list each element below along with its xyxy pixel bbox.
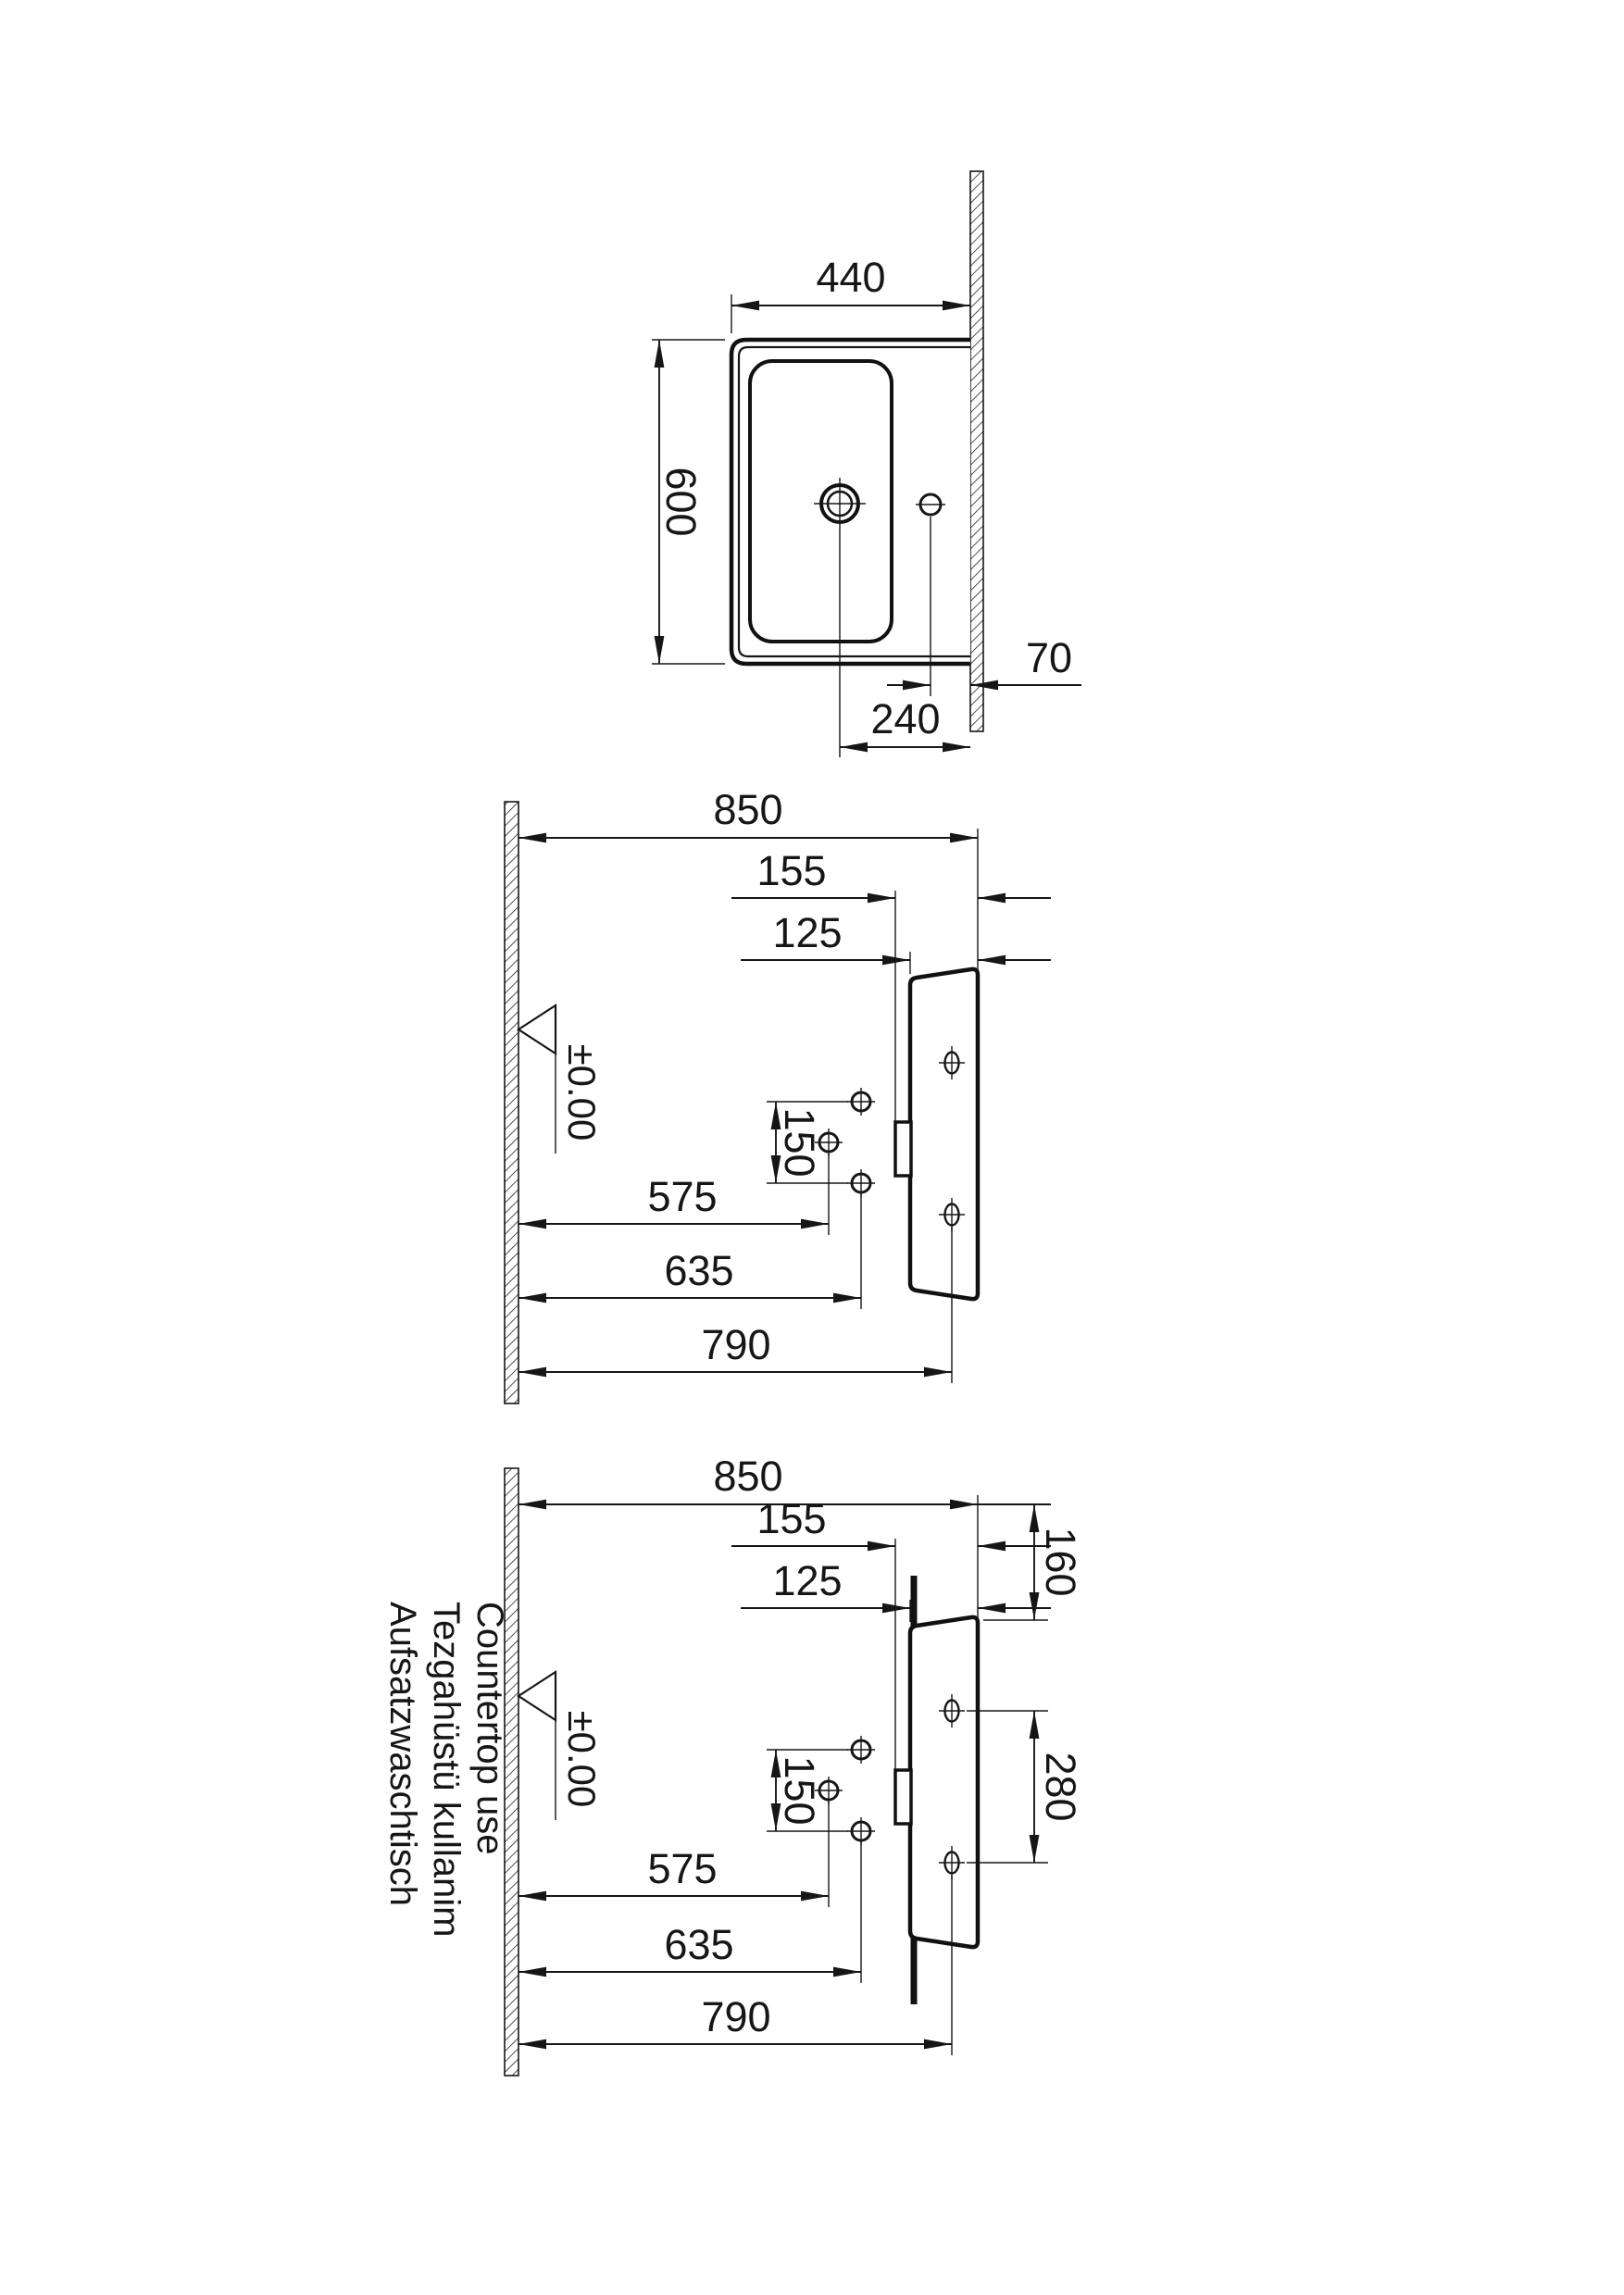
- dim-label-790: 790: [701, 1993, 770, 2040]
- dim-label-150: 150: [776, 1107, 823, 1177]
- wall-hatch: [970, 171, 983, 731]
- dim-label-635: 635: [664, 1247, 733, 1294]
- dim-label-70: 70: [1026, 634, 1072, 681]
- dim-label-575: 575: [647, 1845, 717, 1892]
- dim-label-575: 575: [647, 1173, 717, 1220]
- caption-tr: Tezgahüstü kullanim: [426, 1602, 467, 1937]
- dim-label-280: 280: [1037, 1752, 1084, 1821]
- dimension-height-850: 850: [518, 786, 978, 970]
- caption-en: Countertop use: [469, 1602, 510, 1855]
- floor-hatch: [505, 802, 518, 1403]
- level-mark: ±0.00: [518, 1005, 604, 1154]
- technical-drawing-page: 440 600 70 240: [0, 0, 1624, 2295]
- dim-label-155: 155: [756, 1495, 826, 1542]
- dim-label-790: 790: [701, 1321, 770, 1368]
- dimension-waste-240: 240: [840, 695, 970, 752]
- dimension-fixing-790: 790: [518, 1876, 952, 2055]
- dim-label-635: 635: [664, 1921, 733, 1968]
- dimension-fixing-790: 790: [518, 1228, 952, 1383]
- plan-view: 440 600 70 240: [652, 171, 1081, 757]
- level-label: ±0.00: [560, 1044, 604, 1141]
- front-view-countertop: 850 155 125 160 ±0.00: [382, 1453, 1084, 2076]
- washbasin-installation-drawing: 440 600 70 240: [0, 0, 1624, 2295]
- level-flag-icon: [518, 1672, 556, 1820]
- dimension-depth-600: 600: [652, 340, 725, 664]
- level-label: ±0.00: [560, 1711, 604, 1808]
- dim-label-850: 850: [713, 1453, 782, 1500]
- dim-label-150: 150: [776, 1755, 823, 1825]
- dim-label-850: 850: [713, 786, 782, 833]
- dim-label-440: 440: [816, 254, 885, 301]
- dim-label-155: 155: [756, 847, 826, 894]
- caption-block: Countertop use Tezgahüstü kullanim Aufsa…: [382, 1602, 510, 1937]
- dim-label-160: 160: [1037, 1527, 1084, 1596]
- dimension-counter-160: 160: [983, 1504, 1084, 1620]
- level-flag-icon: [518, 1005, 556, 1154]
- dim-label-240: 240: [870, 695, 940, 742]
- dim-label-125: 125: [772, 1557, 842, 1604]
- dimension-drop-155: 155: [731, 847, 1051, 903]
- caption-de: Aufsatzwaschtisch: [382, 1602, 423, 1906]
- dimension-fixing-spacing-280: 280: [967, 1711, 1084, 1863]
- level-mark: ±0.00: [518, 1672, 604, 1820]
- front-view-wall-hung: 850 155 125 ±0.00 150: [505, 786, 1051, 1403]
- dim-label-125: 125: [772, 909, 842, 956]
- dim-label-600: 600: [657, 467, 705, 536]
- dimension-width-440: 440: [731, 254, 970, 333]
